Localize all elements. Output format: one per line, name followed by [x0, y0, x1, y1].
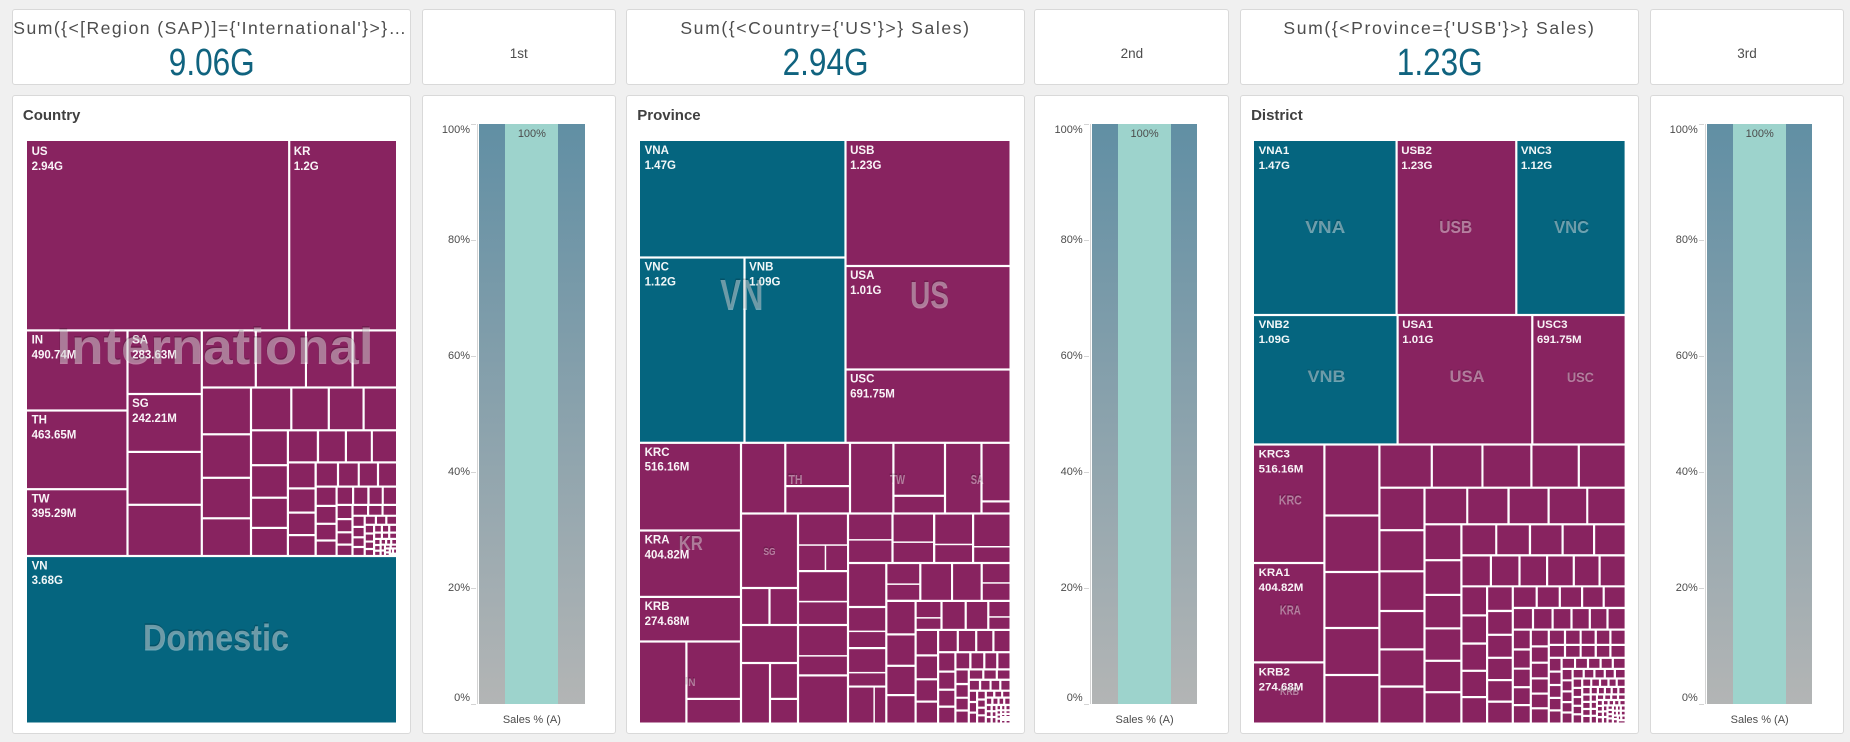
- svg-text:1.01G: 1.01G: [1402, 334, 1433, 346]
- svg-text:1.47G: 1.47G: [645, 160, 676, 172]
- svg-text:KRB: KRB: [645, 601, 670, 613]
- svg-text:USB: USB: [851, 145, 875, 157]
- svg-text:KRA: KRA: [645, 535, 670, 547]
- svg-text:IN: IN: [686, 677, 696, 689]
- svg-text:KRC: KRC: [1279, 492, 1303, 507]
- svg-text:VNA: VNA: [1305, 217, 1345, 237]
- svg-text:USA1: USA1: [1402, 319, 1433, 331]
- svg-text:KRB: KRB: [1280, 686, 1299, 698]
- svg-text:3.68G: 3.68G: [32, 575, 63, 587]
- svg-text:USC: USC: [851, 374, 875, 386]
- svg-text:VNC3: VNC3: [1521, 145, 1552, 157]
- svg-text:KRB2: KRB2: [1259, 666, 1290, 678]
- svg-text:516.16M: 516.16M: [645, 462, 690, 474]
- svg-text:US: US: [910, 275, 949, 317]
- svg-text:404.82M: 404.82M: [1259, 582, 1304, 594]
- svg-text:KR: KR: [679, 533, 703, 555]
- svg-text:VNB: VNB: [1307, 367, 1345, 386]
- svg-text:US: US: [32, 146, 48, 158]
- svg-text:VN: VN: [721, 271, 764, 320]
- svg-text:USC3: USC3: [1537, 319, 1568, 331]
- svg-text:USA: USA: [1449, 367, 1484, 386]
- svg-text:1.47G: 1.47G: [1259, 160, 1290, 172]
- svg-text:USB2: USB2: [1401, 145, 1432, 157]
- svg-text:2.94G: 2.94G: [32, 161, 63, 173]
- svg-text:KRA1: KRA1: [1259, 567, 1291, 579]
- svg-text:TH: TH: [789, 472, 803, 487]
- svg-text:516.16M: 516.16M: [1259, 463, 1304, 475]
- svg-text:1.12G: 1.12G: [1521, 160, 1552, 172]
- svg-text:USC: USC: [1567, 369, 1594, 385]
- svg-text:VNC: VNC: [645, 262, 669, 274]
- svg-text:KRA: KRA: [1280, 602, 1301, 617]
- svg-text:395.29M: 395.29M: [32, 508, 77, 520]
- svg-text:1.01G: 1.01G: [851, 285, 882, 297]
- svg-text:1.2G: 1.2G: [294, 161, 319, 173]
- svg-text:691.75M: 691.75M: [851, 388, 896, 400]
- svg-text:KRC3: KRC3: [1259, 449, 1290, 461]
- svg-text:463.65M: 463.65M: [32, 429, 77, 441]
- svg-text:274.68M: 274.68M: [645, 616, 690, 628]
- svg-text:VNA: VNA: [645, 145, 669, 157]
- svg-text:SA: SA: [971, 472, 984, 487]
- svg-text:USB: USB: [1439, 217, 1472, 237]
- svg-text:SG: SG: [764, 547, 776, 558]
- svg-text:1.23G: 1.23G: [851, 160, 882, 172]
- svg-text:691.75M: 691.75M: [1537, 334, 1582, 346]
- svg-text:TW: TW: [32, 493, 50, 505]
- svg-text:VN: VN: [32, 560, 48, 572]
- svg-text:TH: TH: [32, 415, 47, 427]
- svg-text:VNB2: VNB2: [1259, 319, 1290, 331]
- svg-text:VNC: VNC: [1554, 217, 1589, 237]
- svg-text:SG: SG: [132, 398, 149, 410]
- svg-text:KRC: KRC: [645, 447, 670, 459]
- svg-text:KR: KR: [294, 146, 311, 158]
- svg-text:International: International: [57, 319, 374, 375]
- svg-text:1.09G: 1.09G: [1259, 334, 1290, 346]
- svg-text:IN: IN: [32, 335, 43, 347]
- svg-text:VNA1: VNA1: [1259, 145, 1290, 157]
- svg-text:1.12G: 1.12G: [645, 276, 676, 288]
- svg-text:242.21M: 242.21M: [132, 413, 177, 425]
- svg-text:1.23G: 1.23G: [1401, 160, 1432, 172]
- svg-text:USA: USA: [851, 270, 875, 282]
- svg-text:Domestic: Domestic: [143, 618, 289, 659]
- svg-text:TW: TW: [890, 472, 906, 487]
